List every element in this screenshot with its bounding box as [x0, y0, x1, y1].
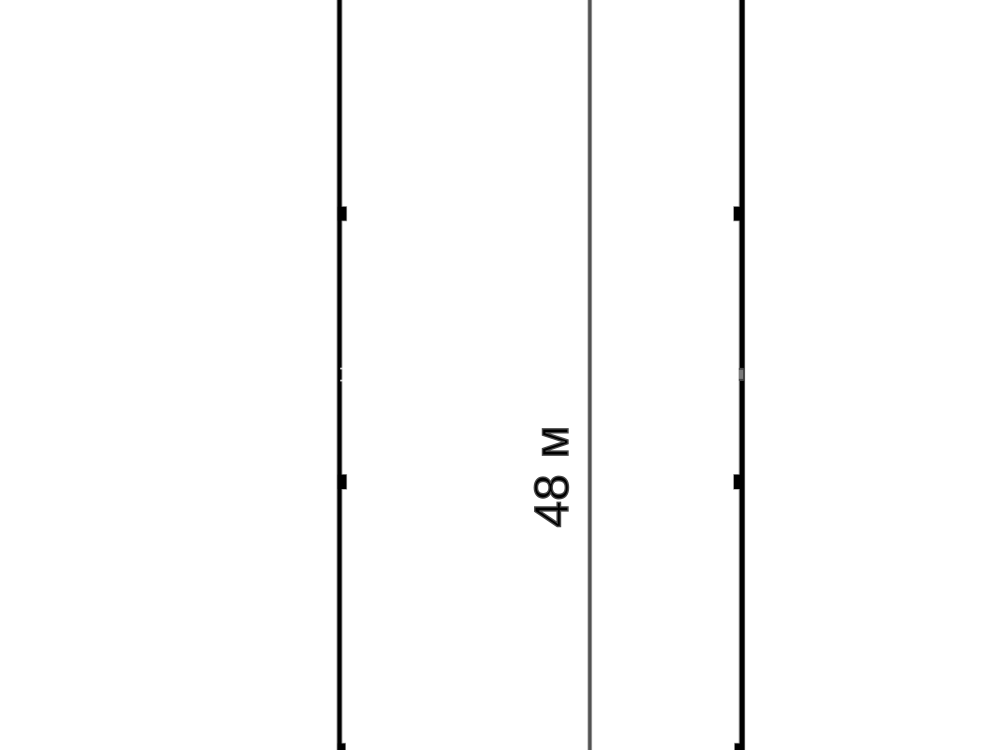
svg-text:48 м: 48 м — [526, 425, 579, 527]
